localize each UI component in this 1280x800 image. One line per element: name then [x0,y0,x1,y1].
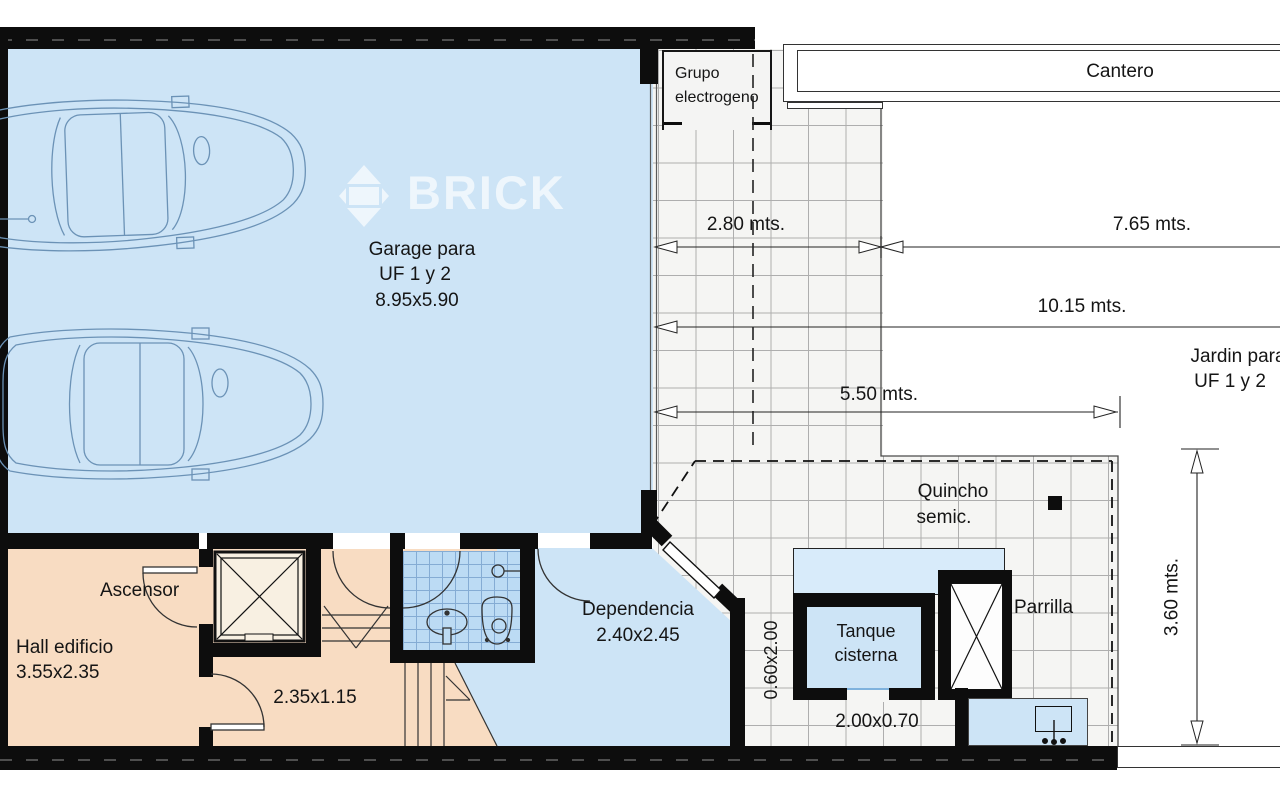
dependencia-label-2: 2.40x2.45 [596,626,679,645]
garage-south-wall-b [207,533,333,549]
dimension-5-50: 5.50 mts. [840,385,918,404]
garage-wall-stub-bottom [641,490,657,533]
elevator-wall-left-top [199,549,213,567]
dimension-10-15: 10.15 mts. [1038,297,1127,316]
cantero-step [787,102,883,109]
garage-floor [8,49,653,533]
garage-label-1: Garage para [369,240,476,259]
hall-label-2: 3.55x2.35 [16,663,99,682]
quincho-label-2: semic. [917,508,972,527]
brick-watermark: BRICK [407,165,566,220]
garage-label-2: UF 1 y 2 [379,265,451,284]
grupo-box-sill-left [664,122,682,125]
tanque-opening [847,688,889,702]
dimension-7-65: 7.65 mts. [1113,215,1191,234]
parrilla-label: Parrilla [1014,598,1073,617]
tanque-size-label: 2.00x0.70 [835,712,918,731]
dimension-3-60: 3.60 mts. [1163,558,1182,636]
counter-sink [1035,706,1072,732]
cantero-label: Cantero [1086,62,1154,81]
left-wall [0,27,8,770]
cantero-inner [797,50,1280,92]
bathroom-wall-bottom [390,650,535,663]
sidewalk-curb [1117,746,1280,768]
garage-label-3: 8.95x5.90 [375,291,458,310]
hall-wall-right-top [199,663,213,677]
hall-wall-right-bottom [199,727,213,748]
elevator-wall-bottom [199,643,321,657]
grupo-electrogeno-label-2: electrogeno [675,90,759,106]
bathroom-wall-left [390,533,403,663]
grupo-wall-stub [640,49,658,84]
parrilla-grill [950,583,1003,690]
jardin-label-1: Jardin para [1190,347,1280,366]
counter-wall-stub [955,688,968,748]
jardin-label-2: UF 1 y 2 [1194,372,1266,391]
grupo-box-sill-right [752,122,770,125]
floor-plan: BRICK Grupo electrogeno Cantero Garage p… [0,0,1280,800]
quincho-column-dot [1048,496,1062,510]
dimension-2-80: 2.80 mts. [707,215,785,234]
bottom-wall [0,746,1117,770]
garage-south-wall-a [0,533,199,549]
bathroom-floor [403,551,520,650]
tanque-label-1: Tanque [836,622,895,640]
hall-label-1: Hall edificio [16,638,113,657]
garage-south-wall-e [590,533,652,549]
ascensor-label: Ascensor [100,581,179,600]
dependencia-label-1: Dependencia [582,600,694,619]
dependencia-wall-right [730,598,745,748]
pasillo-size-label: 2.35x1.15 [273,688,356,707]
grupo-electrogeno-label-1: Grupo [675,66,719,82]
elevator-wall-right [306,549,321,657]
bathroom-wall-right [520,533,535,663]
lavadero-size-label: 0.60x2.00 [762,620,780,699]
tanque-label-2: cisterna [834,646,897,664]
top-wall [0,27,755,49]
quincho-label-1: Quincho [918,482,989,501]
